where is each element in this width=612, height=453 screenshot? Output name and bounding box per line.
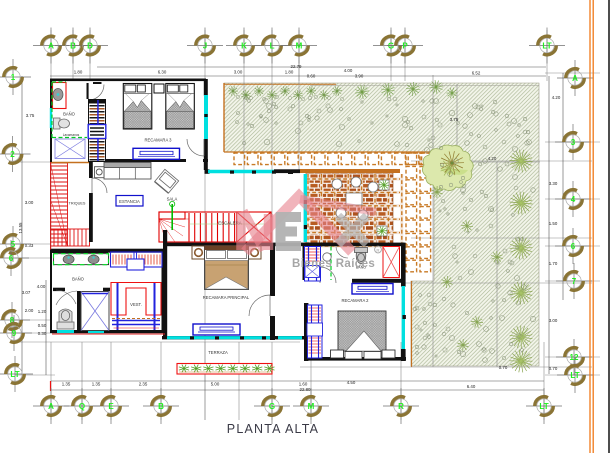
svg-text:1.35: 1.35	[92, 382, 101, 387]
svg-text:6: 6	[9, 254, 14, 263]
svg-text:Lavamanos: Lavamanos	[63, 133, 80, 137]
svg-text:5.00: 5.00	[211, 382, 220, 387]
svg-text:TERRAZA: TERRAZA	[208, 350, 228, 355]
svg-text:3.00: 3.00	[25, 200, 34, 205]
svg-text:P: P	[402, 41, 408, 50]
svg-text:0.70: 0.70	[499, 365, 508, 370]
svg-text:RECAMARA 2: RECAMARA 2	[342, 298, 370, 303]
svg-text:3.90: 3.90	[355, 74, 364, 79]
svg-text:1.50: 1.50	[549, 221, 558, 226]
svg-text:3: 3	[571, 138, 576, 147]
svg-text:4: 4	[571, 195, 576, 204]
svg-text:M: M	[296, 41, 303, 50]
svg-text:7: 7	[572, 277, 577, 286]
svg-text:R: R	[398, 402, 404, 411]
svg-text:9: 9	[12, 329, 17, 338]
svg-text:0.50: 0.50	[38, 323, 47, 328]
svg-text:0.60: 0.60	[307, 74, 316, 79]
svg-text:13.55: 13.55	[18, 222, 23, 234]
svg-text:L: L	[270, 41, 275, 50]
svg-text:LT: LT	[10, 370, 19, 379]
svg-text:D: D	[87, 41, 93, 50]
svg-text:1.70: 1.70	[549, 261, 558, 266]
svg-text:G: G	[269, 402, 275, 411]
svg-text:1.35: 1.35	[62, 382, 71, 387]
svg-text:TRIQUES: TRIQUES	[69, 202, 86, 206]
svg-text:A: A	[48, 402, 54, 411]
svg-text:2.00: 2.00	[25, 308, 34, 313]
svg-text:4.50: 4.50	[347, 380, 356, 385]
svg-text:4.00: 4.00	[37, 284, 46, 289]
svg-text:3.75: 3.75	[26, 113, 35, 118]
svg-text:RECAMARA 3: RECAMARA 3	[145, 138, 173, 143]
svg-text:2.35: 2.35	[139, 382, 148, 387]
svg-text:B: B	[158, 402, 164, 411]
svg-text:E: E	[108, 402, 114, 411]
svg-text:6.40: 6.40	[467, 384, 476, 389]
svg-text:K: K	[241, 41, 247, 50]
svg-text:LT: LT	[542, 41, 551, 50]
svg-text:4.00: 4.00	[344, 68, 353, 73]
svg-text:22.80: 22.80	[300, 387, 312, 392]
svg-text:3.00: 3.00	[234, 70, 243, 75]
svg-text:3.00: 3.00	[549, 318, 558, 323]
svg-text:PLANTA ALTA: PLANTA ALTA	[227, 422, 319, 436]
svg-text:3.75: 3.75	[450, 117, 459, 122]
svg-text:SALA: SALA	[167, 197, 178, 202]
svg-text:VEST.: VEST.	[130, 302, 142, 307]
svg-text:3.30: 3.30	[549, 181, 558, 186]
svg-text:0.30: 0.30	[38, 331, 47, 336]
svg-text:1.80: 1.80	[285, 70, 294, 75]
svg-text:RECAMARA PRINCIPAL: RECAMARA PRINCIPAL	[203, 295, 250, 300]
svg-text:A: A	[48, 41, 54, 50]
svg-text:1.60: 1.60	[299, 382, 308, 387]
svg-text:3.07: 3.07	[22, 290, 31, 295]
svg-text:J: J	[203, 41, 207, 50]
svg-text:22.79: 22.79	[291, 64, 303, 69]
svg-text:LT: LT	[570, 371, 579, 380]
svg-text:6.52: 6.52	[472, 71, 481, 76]
svg-text:12: 12	[570, 353, 579, 362]
svg-text:6.30: 6.30	[158, 70, 167, 75]
svg-text:6: 6	[571, 242, 576, 251]
svg-text:Q: Q	[79, 402, 85, 411]
svg-text:0.70: 0.70	[549, 366, 558, 371]
svg-text:2: 2	[10, 150, 15, 159]
svg-text:R: R	[376, 248, 379, 253]
svg-text:ESTANCIA: ESTANCIA	[119, 199, 140, 204]
svg-text:BAÑO: BAÑO	[72, 277, 85, 282]
svg-text:LT: LT	[539, 402, 548, 411]
svg-text:Bienes Raíces: Bienes Raíces	[292, 258, 375, 270]
svg-text:4.20: 4.20	[552, 95, 561, 100]
svg-text:4.20: 4.20	[488, 156, 497, 161]
svg-text:A: A	[572, 74, 578, 83]
svg-text:BAÑO: BAÑO	[63, 112, 76, 117]
svg-text:1.80: 1.80	[74, 70, 83, 75]
svg-text:M: M	[308, 402, 315, 411]
svg-text:1.20: 1.20	[38, 309, 47, 314]
svg-text:1: 1	[11, 73, 16, 82]
